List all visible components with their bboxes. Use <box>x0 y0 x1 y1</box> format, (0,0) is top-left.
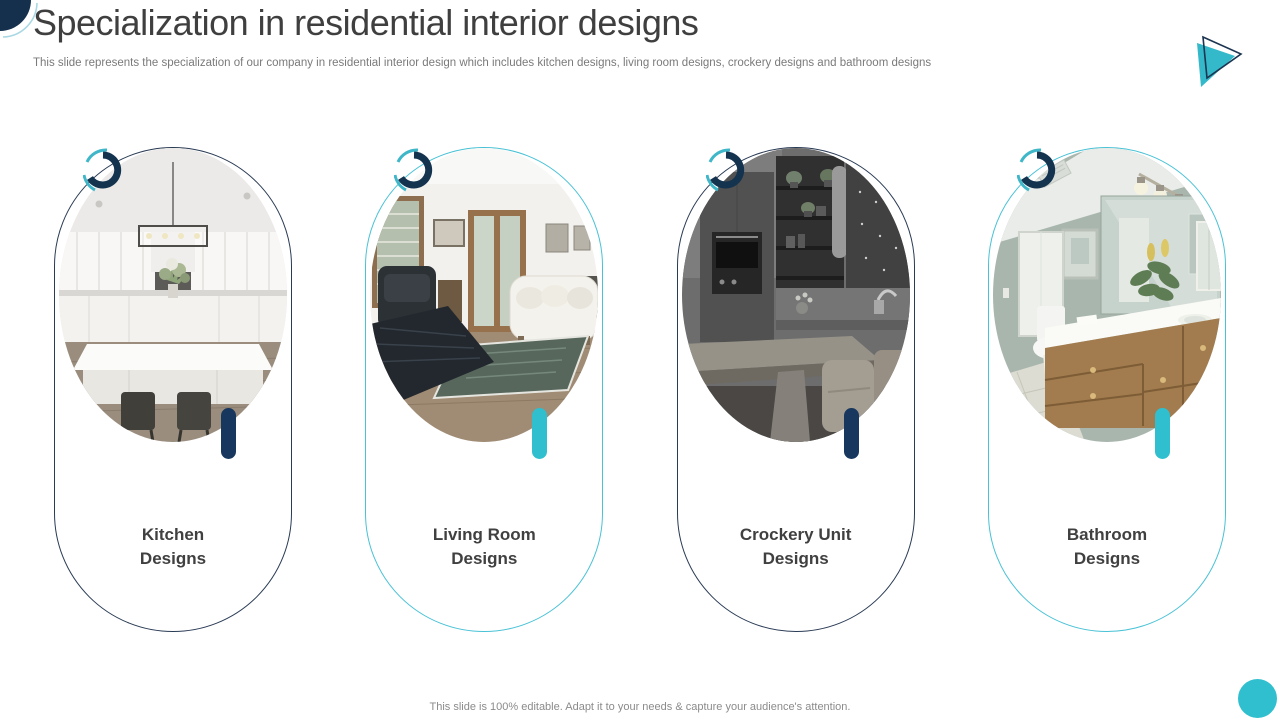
swirl-arcs-icon <box>394 144 434 202</box>
card-kitchen-designs: Kitchen Designs <box>54 147 292 632</box>
card-label: Crockery Unit Designs <box>678 523 914 571</box>
play-triangle-icon <box>1192 32 1246 96</box>
card-label-line1: Kitchen <box>55 523 291 547</box>
footer-note: This slide is 100% editable. Adapt it to… <box>0 701 1280 713</box>
accent-bar <box>1155 408 1170 459</box>
card-label-line1: Living Room <box>366 523 602 547</box>
slide: Specialization in residential interior d… <box>0 0 1280 720</box>
card-label-line2: Designs <box>366 547 602 571</box>
teal-dot <box>1238 679 1277 718</box>
card-label-line1: Bathroom <box>989 523 1225 547</box>
accent-bar <box>532 408 547 459</box>
card-living-room-designs: Living Room Designs <box>365 147 603 632</box>
card-label: Kitchen Designs <box>55 523 291 571</box>
card-bathroom-designs: Bathroom Designs <box>988 147 1226 632</box>
swirl-arcs-icon <box>83 144 123 202</box>
card-label-line1: Crockery Unit <box>678 523 914 547</box>
swirl-arcs-icon <box>706 144 746 202</box>
card-label: Living Room Designs <box>366 523 602 571</box>
card-label-line2: Designs <box>678 547 914 571</box>
page-subtitle: This slide represents the specialization… <box>33 57 931 69</box>
accent-bar <box>221 408 236 459</box>
card-row: Kitchen Designs <box>54 147 1226 633</box>
page-title: Specialization in residential interior d… <box>33 2 698 44</box>
card-label-line2: Designs <box>55 547 291 571</box>
card-label: Bathroom Designs <box>989 523 1225 571</box>
accent-bar <box>844 408 859 459</box>
swirl-arcs-icon <box>1017 144 1057 202</box>
card-crockery-unit-designs: Crockery Unit Designs <box>677 147 915 632</box>
card-label-line2: Designs <box>989 547 1225 571</box>
